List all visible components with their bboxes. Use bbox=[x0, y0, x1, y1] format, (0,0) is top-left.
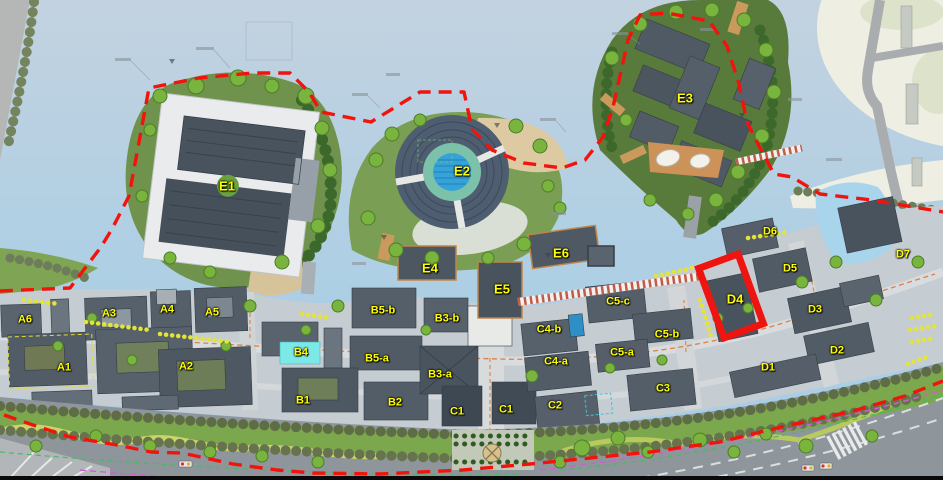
bridge bbox=[301, 262, 316, 295]
b4-cyan-roof bbox=[280, 342, 320, 364]
pool bbox=[568, 314, 584, 337]
c1-plaza bbox=[452, 430, 534, 470]
traffic-light-icon bbox=[820, 463, 832, 469]
e1-buildings bbox=[142, 93, 325, 278]
site-plan-map bbox=[0, 0, 943, 480]
traffic-light-icon bbox=[802, 465, 814, 471]
bottom-black-strip bbox=[0, 476, 943, 480]
traffic-light-icon bbox=[179, 461, 192, 467]
site-plan-screenshot: A6A3A4A5A1A2B4B5-bB5-aB3-bB3-aB1B2C1C1C2… bbox=[0, 0, 943, 480]
e2-flower-building bbox=[395, 115, 509, 229]
